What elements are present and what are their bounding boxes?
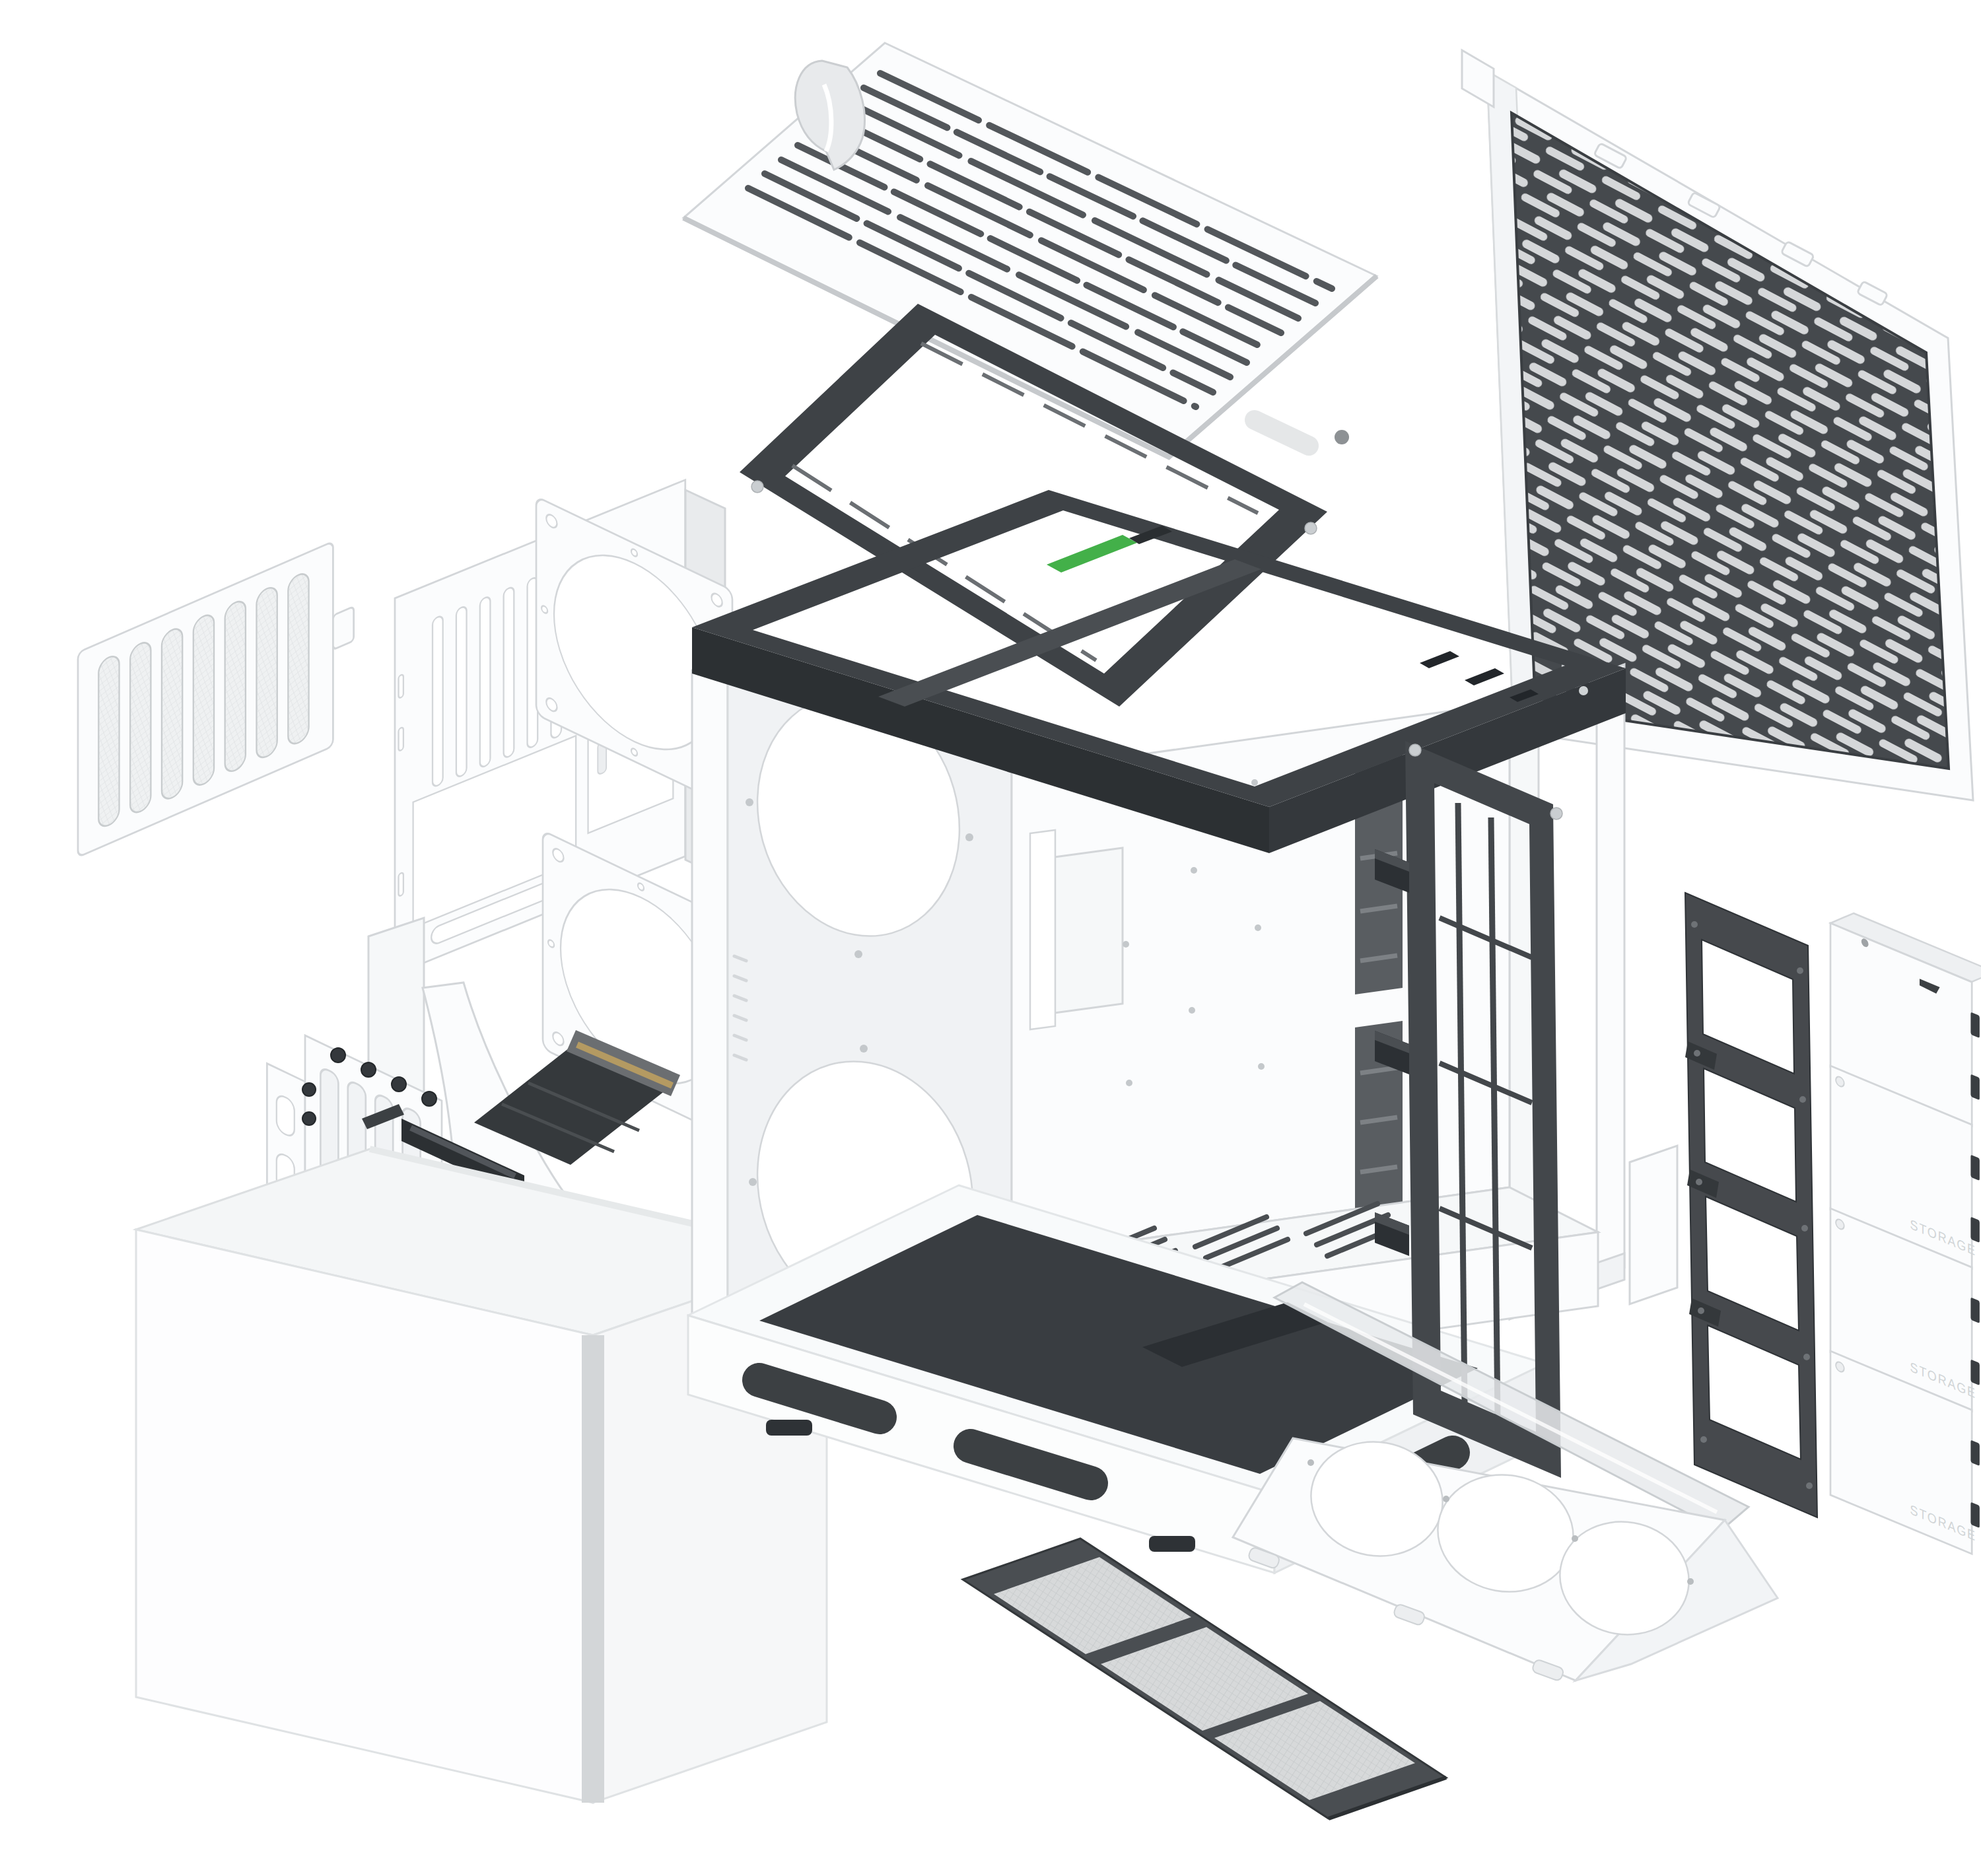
top-bracket-screw-left <box>751 481 763 493</box>
exploded-view-diagram: STORAGE STORAGE STORAGE <box>0 0 1981 1876</box>
chassis-rear-bracket <box>1630 1146 1677 1304</box>
power-button <box>1579 686 1588 695</box>
chassis-front-column <box>692 657 728 1337</box>
ssd-bracket-frame <box>1685 893 1817 1517</box>
top-panel-handle-slot-outline <box>1255 420 1309 446</box>
io-pcb <box>1047 535 1137 573</box>
top-panel-screw <box>1335 430 1349 444</box>
case-foot <box>1149 1536 1195 1552</box>
top-bracket-screw-right <box>1305 522 1317 534</box>
storage-tray-stack: STORAGE STORAGE STORAGE <box>1830 913 1981 1557</box>
cpu-cutout <box>1045 848 1123 1014</box>
side-vent-filter <box>78 532 354 857</box>
front-panel-top-trim <box>1462 50 1494 107</box>
ssd-bracket <box>1685 893 1817 1517</box>
case-foot <box>766 1420 812 1436</box>
chassis-rear-column <box>1597 664 1624 1278</box>
top-panel <box>683 43 1377 457</box>
exploded-diagram-canvas: STORAGE STORAGE STORAGE <box>0 0 1981 1876</box>
top-panel-face <box>683 43 1377 457</box>
side-vent-filter-tab <box>333 606 353 650</box>
radiator-mount-strip <box>1030 830 1055 1029</box>
